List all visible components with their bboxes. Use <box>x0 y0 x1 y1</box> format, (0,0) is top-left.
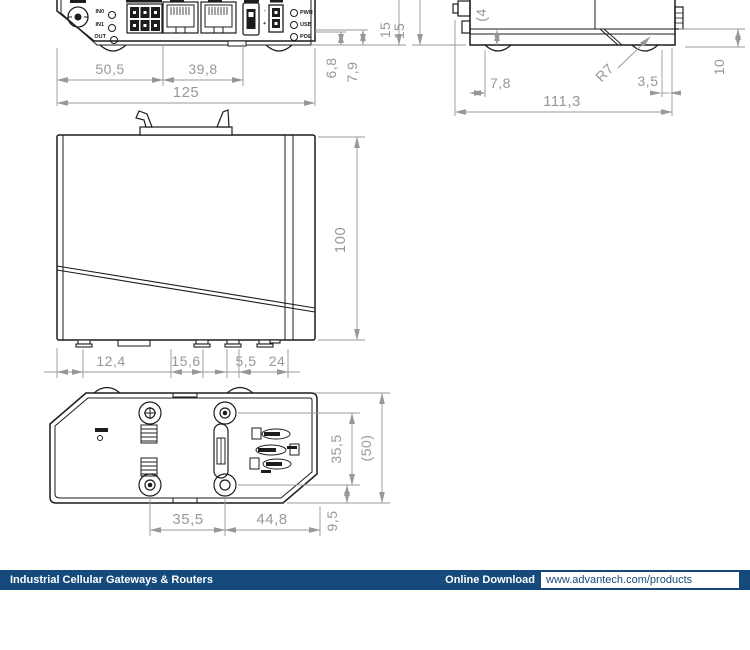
dim-side-111-3: 111,3 <box>543 93 581 110</box>
ethernet-port-eth0-icon <box>163 0 198 33</box>
datasheet-dimension-drawing-page: IN0 IN1 OUT <box>0 0 750 650</box>
footer-series-label: Industrial Cellular Gateways & Routers <box>0 574 213 586</box>
sim-slot-icons <box>250 428 299 473</box>
bottom-foot-top-right <box>227 388 253 394</box>
io-led-in0 <box>109 12 116 19</box>
side-outline <box>470 0 675 45</box>
side-view-dimensions: 15 (4 7,8 R7 3,5 111,3 10 <box>391 0 745 116</box>
panel-seam-diagonal-1 <box>57 266 315 308</box>
dim-side-r7: R7 <box>592 60 617 85</box>
terminal-block-connector-icon <box>126 0 162 33</box>
ethernet-port-eth1-icon <box>201 0 236 33</box>
side-right-connector-stub <box>675 7 683 29</box>
dim-side-7-8: 7,8 <box>490 75 511 91</box>
io-led-in1 <box>109 25 116 32</box>
side-view <box>453 0 683 51</box>
dimension-drawing-canvas: IN0 IN1 OUT <box>0 0 750 650</box>
led-pwr <box>291 10 298 17</box>
dim-side-15: 15 <box>391 23 407 40</box>
polarity-minus: - <box>264 8 266 14</box>
io-label-in0: IN0 <box>95 9 104 15</box>
led-usb <box>291 22 298 29</box>
led-label-pwr: PWR <box>300 10 313 16</box>
dim-side-3-5: 3,5 <box>638 73 659 89</box>
bottom-outline-outer <box>50 393 317 503</box>
bottom-view <box>50 388 317 504</box>
dim-panel-5-5: 5,5 <box>236 353 257 369</box>
led-label-poe: POE <box>300 34 312 40</box>
usb-port-icon <box>243 0 259 35</box>
dim-bottom-9-5: 9,5 <box>324 511 340 532</box>
panel-seam-diagonal-2 <box>57 270 315 312</box>
led-poe <box>291 34 298 41</box>
io-led-out <box>111 37 118 44</box>
footer-bar: Industrial Cellular Gateways & Routers O… <box>0 570 750 590</box>
front-foot-right <box>266 45 292 51</box>
front-foot-left <box>100 45 126 51</box>
side-left-connector-stub <box>453 1 470 33</box>
side-panel-view <box>57 110 315 347</box>
dim-front-39-8: 39,8 <box>188 61 217 77</box>
panel-outline <box>57 135 315 340</box>
vent-slots <box>141 425 157 476</box>
footer-download-url-link[interactable]: www.advantech.com/products <box>541 572 739 588</box>
footer-download-label: Online Download <box>445 574 541 586</box>
io-indicator-group: IN0 IN1 OUT <box>94 9 117 44</box>
dim-bottom-35-5-h: 35,5 <box>172 511 203 528</box>
din-release-slot <box>214 424 228 478</box>
led-label-usb: USB <box>300 22 312 28</box>
reset-hole <box>95 428 108 441</box>
dim-bottom-44-8: 44,8 <box>256 511 287 528</box>
io-label-in1: IN1 <box>95 22 104 28</box>
dim-side-4: (4 <box>473 8 489 21</box>
din-rail-clip <box>136 110 232 135</box>
dim-bottom-35-5-v: 35,5 <box>328 434 344 463</box>
power-connector-icon <box>269 0 283 32</box>
dim-side-10: 10 <box>711 59 727 76</box>
dim-panel-12-4: 12,4 <box>96 353 125 369</box>
bottom-foot-top-left <box>94 388 120 394</box>
dim-panel-24: 24 <box>269 353 286 369</box>
dim-front-50-5: 50,5 <box>95 61 124 77</box>
dim-panel-15-6: 15,6 <box>171 353 200 369</box>
dim-bottom-50: (50) <box>358 435 374 462</box>
polarity-plus: + <box>263 21 266 27</box>
front-panel-view: IN0 IN1 OUT <box>57 0 315 51</box>
polarity-marks: - + <box>263 8 266 27</box>
dim-front-6-8: 6,8 <box>323 58 339 79</box>
side-foot-left <box>485 45 511 51</box>
panel-feet <box>76 340 280 347</box>
dim-panel-100: 100 <box>332 227 349 254</box>
dim-front-125: 125 <box>173 84 200 101</box>
screw-holes <box>139 402 236 496</box>
status-led-group: PWR USB POE <box>291 10 313 41</box>
io-label-out: OUT <box>94 34 106 40</box>
dim-front-7-9: 7,9 <box>344 62 360 83</box>
